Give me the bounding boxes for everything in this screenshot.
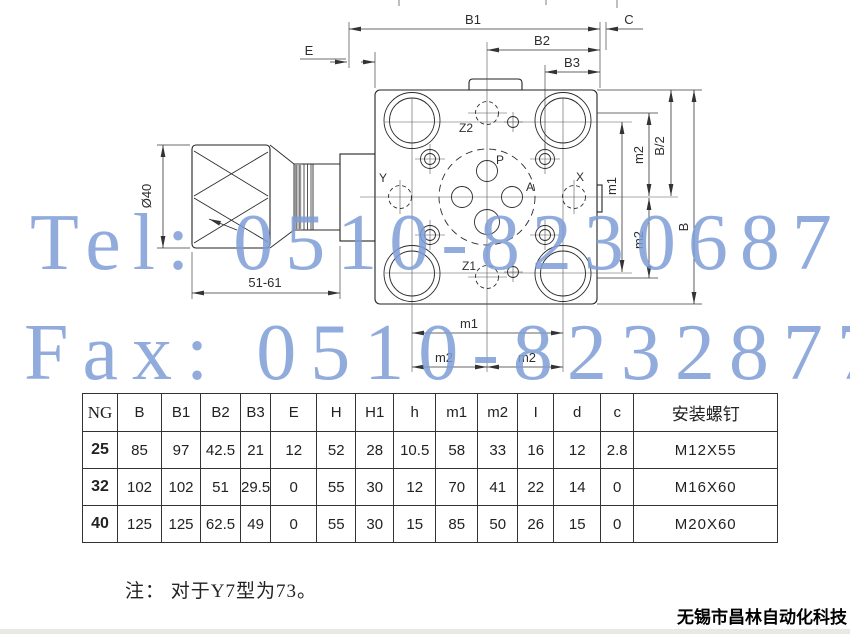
spec-table: NGBB1B2B3EHH1hm1m2Idc安装螺钉 25859742.52112… (82, 393, 778, 543)
spec-cell: 32 (83, 469, 118, 506)
spec-cell: 33 (478, 432, 518, 469)
spec-cell: 42.5 (201, 432, 241, 469)
spec-cell: 22 (518, 469, 554, 506)
spec-cell: 0 (601, 506, 634, 543)
spec-cell: 125 (162, 506, 201, 543)
spec-header-cell: c (601, 394, 634, 432)
spec-table-row: 4012512562.5490553015855026150M20X60 (83, 506, 778, 543)
spec-cell: 26 (518, 506, 554, 543)
spec-cell: 28 (356, 432, 394, 469)
spec-cell: 55 (317, 506, 356, 543)
spec-header-cell: B1 (162, 394, 201, 432)
spec-header-cell: d (554, 394, 601, 432)
port-label-y: Y (379, 171, 387, 185)
spec-cell: 16 (518, 432, 554, 469)
spec-cell: 102 (162, 469, 201, 506)
page: B1 C B2 B3 E Ø40 51-61 m1 m2 m2 m1 m2 m2… (0, 0, 850, 634)
spec-cell: 30 (356, 506, 394, 543)
spec-cell: 0 (271, 469, 317, 506)
spec-cell: 55 (317, 469, 356, 506)
spec-header-cell: I (518, 394, 554, 432)
spec-header-cell: 安装螺钉 (634, 394, 778, 432)
spec-cell: M20X60 (634, 506, 778, 543)
spec-cell: 51 (201, 469, 241, 506)
spec-cell: 25 (83, 432, 118, 469)
spec-cell: 97 (162, 432, 201, 469)
spec-header-cell: NG (83, 394, 118, 432)
spec-header-cell: H1 (356, 394, 394, 432)
spec-cell: 0 (271, 506, 317, 543)
spec-cell: 21 (241, 432, 271, 469)
spec-cell: 12 (554, 432, 601, 469)
spec-header-cell: B (118, 394, 162, 432)
dim-label-b3: B3 (564, 55, 580, 70)
spec-header-cell: m1 (436, 394, 478, 432)
spec-header-cell: H (317, 394, 356, 432)
spec-header-cell: m2 (478, 394, 518, 432)
port-label-a: A (526, 180, 534, 194)
spec-cell: 12 (271, 432, 317, 469)
spec-cell: 58 (436, 432, 478, 469)
spec-cell: 49 (241, 506, 271, 543)
spec-cell: 125 (118, 506, 162, 543)
watermark-fax: Fax: 0510-82328771 (24, 308, 850, 399)
spec-cell: 62.5 (201, 506, 241, 543)
dim-label-e: E (305, 43, 314, 58)
port-label-z2: Z2 (459, 121, 473, 135)
spec-cell: 12 (394, 469, 436, 506)
port-label-x: X (576, 170, 584, 184)
dim-label-m2-upper: m2 (631, 146, 646, 164)
top-boss (469, 79, 522, 90)
spec-cell: 14 (554, 469, 601, 506)
spec-table-row: 25859742.52112522810.5583316122.8M12X55 (83, 432, 778, 469)
spec-table-body: 25859742.52112522810.5583316122.8M12X553… (83, 432, 778, 543)
spec-cell: 85 (118, 432, 162, 469)
spec-header-cell: E (271, 394, 317, 432)
spec-table-row: 321021025129.50553012704122140M16X60 (83, 469, 778, 506)
spec-cell: 29.5 (241, 469, 271, 506)
spec-cell: 70 (436, 469, 478, 506)
spec-cell: 30 (356, 469, 394, 506)
spec-cell: 15 (554, 506, 601, 543)
spec-cell: 41 (478, 469, 518, 506)
spec-cell: 50 (478, 506, 518, 543)
spec-cell: 102 (118, 469, 162, 506)
spec-cell: M12X55 (634, 432, 778, 469)
spec-cell: M16X60 (634, 469, 778, 506)
dim-label-b-half: B/2 (652, 136, 667, 156)
spec-header-cell: h (394, 394, 436, 432)
dim-label-b1: B1 (465, 12, 481, 27)
dim-label-m1-right: m1 (604, 177, 619, 195)
note-text: 注： 对于Y7型为73。 (125, 576, 317, 603)
spec-header-cell: B3 (241, 394, 271, 432)
bottom-edge-strip (0, 629, 850, 634)
spec-table-head-row: NGBB1B2B3EHH1hm1m2Idc安装螺钉 (83, 394, 778, 432)
spec-cell: 2.8 (601, 432, 634, 469)
spec-cell: 10.5 (394, 432, 436, 469)
port-label-p: P (496, 153, 504, 167)
spec-cell: 40 (83, 506, 118, 543)
dim-label-b2: B2 (534, 33, 550, 48)
spec-header-cell: B2 (201, 394, 241, 432)
spec-cell: 0 (601, 469, 634, 506)
spec-cell: 15 (394, 506, 436, 543)
spec-cell: 52 (317, 432, 356, 469)
spec-cell: 85 (436, 506, 478, 543)
dim-label-c: C (624, 12, 633, 27)
company-name: 无锡市昌林自动化科技 (677, 603, 847, 628)
watermark-tel: Tel: 0510-82306871 (30, 198, 850, 289)
